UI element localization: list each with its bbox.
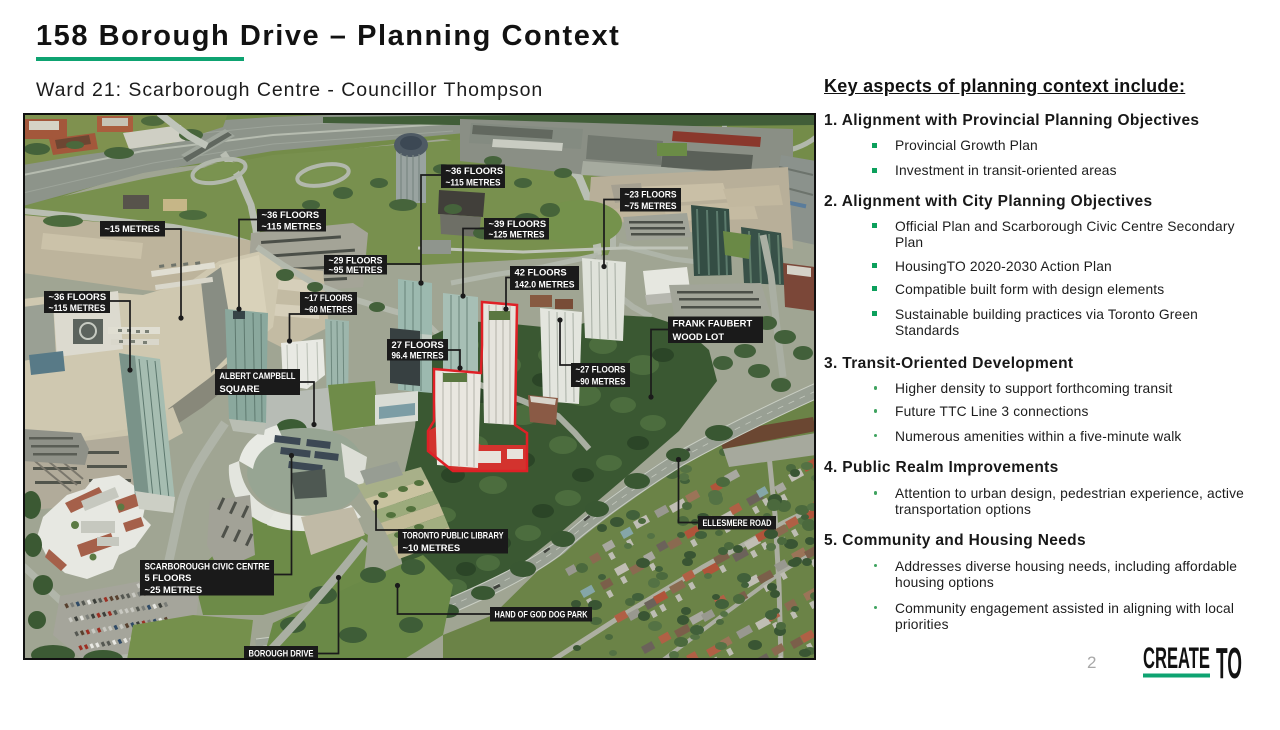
svg-text:~115 METRES: ~115 METRES [262, 220, 322, 231]
svg-text:~95 METRES: ~95 METRES [329, 264, 383, 275]
svg-text:BOROUGH DRIVE: BOROUGH DRIVE [249, 649, 314, 659]
svg-text:~23 FLOORS: ~23 FLOORS [625, 188, 677, 199]
svg-text:~39 FLOORS: ~39 FLOORS [489, 218, 547, 229]
svg-text:~27 FLOORS: ~27 FLOORS [576, 363, 626, 374]
svg-text:SCARBOROUGH CIVIC CENTRE: SCARBOROUGH CIVIC CENTRE [145, 560, 270, 571]
svg-text:5 FLOORS: 5 FLOORS [145, 572, 192, 583]
svg-text:HAND OF GOD DOG PARK: HAND OF GOD DOG PARK [495, 610, 588, 620]
svg-text:42 FLOORS: 42 FLOORS [515, 266, 567, 277]
svg-text:~25 METRES: ~25 METRES [145, 584, 203, 595]
svg-text:96.4 METRES: 96.4 METRES [392, 350, 444, 361]
svg-text:WOOD LOT: WOOD LOT [673, 331, 725, 342]
svg-text:TO: TO [1216, 642, 1242, 684]
svg-text:TORONTO PUBLIC LIBRARY: TORONTO PUBLIC LIBRARY [403, 530, 505, 541]
svg-text:~115 METRES: ~115 METRES [446, 177, 501, 188]
svg-text:142.0 METRES: 142.0 METRES [515, 278, 575, 289]
svg-text:~75 METRES: ~75 METRES [625, 200, 677, 211]
svg-text:SQUARE: SQUARE [220, 383, 260, 394]
svg-text:27 FLOORS: 27 FLOORS [392, 339, 444, 350]
svg-text:~17 FLOORS: ~17 FLOORS [305, 292, 353, 303]
svg-text:~90 METRES: ~90 METRES [576, 375, 626, 386]
svg-text:~15 METRES: ~15 METRES [105, 224, 160, 234]
svg-text:~115 METRES: ~115 METRES [49, 302, 106, 313]
svg-text:~36 FLOORS: ~36 FLOORS [262, 209, 320, 220]
svg-text:CREATE: CREATE [1143, 642, 1210, 675]
svg-text:~60 METRES: ~60 METRES [305, 304, 353, 315]
svg-text:~36 FLOORS: ~36 FLOORS [49, 291, 107, 302]
svg-text:~10 METRES: ~10 METRES [403, 542, 461, 553]
svg-text:FRANK FAUBERT: FRANK FAUBERT [673, 318, 753, 329]
svg-text:~125 METRES: ~125 METRES [489, 229, 545, 240]
svg-text:ALBERT CAMPBELL: ALBERT CAMPBELL [220, 370, 296, 381]
svg-text:~36 FLOORS: ~36 FLOORS [446, 165, 504, 176]
svg-text:ELLESMERE ROAD: ELLESMERE ROAD [703, 518, 772, 528]
